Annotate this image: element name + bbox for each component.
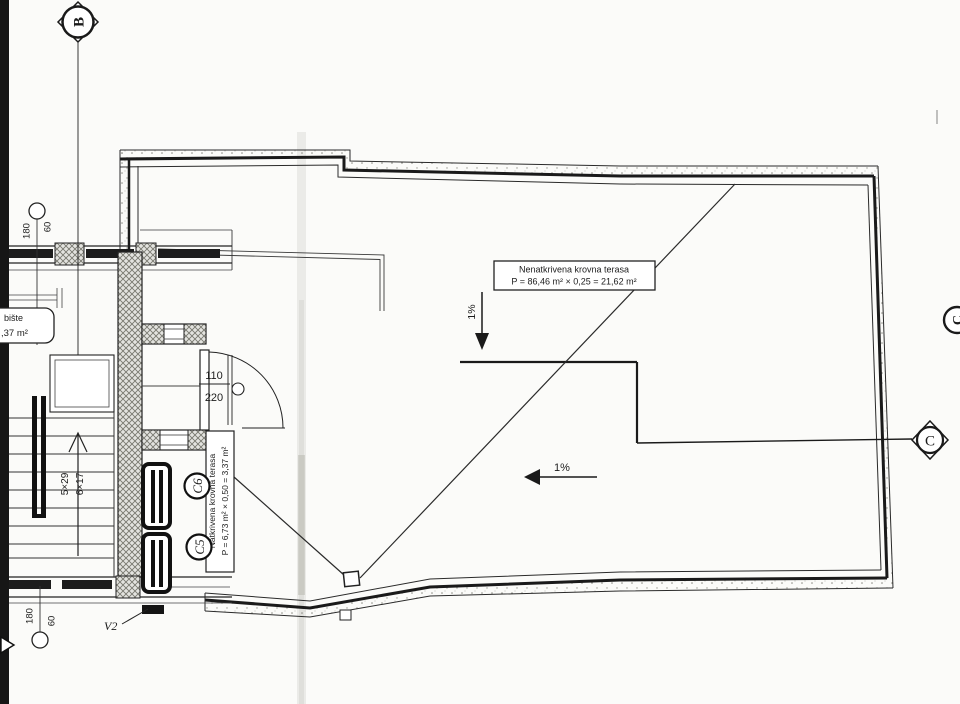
badge-c5-label: C5 [192,539,207,555]
door-knob-symbol [232,383,244,395]
badge-c6: C6 [185,474,210,499]
door-swing-arc [209,352,283,428]
uncovered-terrace-label: Nenatkrivena krovna terasa P = 86,46 m² … [494,261,655,290]
stair-flight-a: 5×29 [60,472,71,495]
door-height-dim: 220 [205,392,223,404]
roof-drain [343,571,359,586]
stairwell [9,355,114,577]
uncovered-terrace-calc: P = 86,46 m² × 0,25 = 21,62 m² [511,277,636,287]
dim-bottom-a: 180 [25,608,36,624]
slope-arrow-left: 1% [524,462,597,485]
v2-label: V2 [104,619,117,633]
terrace-door [142,350,285,430]
covered-terrace-calc: P = 6,73 m² × 0,50 = 3,37 m² [220,446,230,555]
dim-top-a: 180 [22,223,33,239]
grid-marker-b: B [58,2,98,42]
valley-line-short [234,477,344,575]
grid-marker-c-edge-label: C [951,315,960,325]
dim-top-b: 60 [43,222,54,233]
grid-marker-c-axis: C [912,421,948,459]
slope-left-label: 1% [554,462,570,474]
slope-arrow-down: 1% [466,292,489,350]
stair-rail-bar [41,396,46,516]
grid-marker-b-label: B [72,17,88,27]
badge-c5: C5 [187,535,212,560]
grid-marker-c-edge: C [944,307,960,333]
scan-left-border [0,0,9,704]
stair-area-calc: ,37 m² [1,328,28,339]
v2-element [142,605,164,614]
dim-bottom-b: 60 [47,616,58,627]
arrow-down-icon [475,333,489,350]
badge-c6-label: C6 [190,478,205,494]
slope-down-label: 1% [466,304,478,319]
plan-drawing: 5×29 6×17 110 220 Nenatkrivena [0,0,960,704]
scupper [340,610,351,620]
v2-annotation: V2 [104,605,164,633]
stair-area-label: bište ,37 m² [0,308,54,343]
roof-edge-lines [158,249,384,311]
covered-terrace-title: Natkrivena krovna terasa [207,453,217,548]
arrow-left-icon [524,469,540,485]
door-width-dim: 110 [205,370,223,382]
uncovered-terrace-title: Nenatkrivena krovna terasa [519,265,629,275]
roof-vent-2 [143,534,170,592]
stair-area-title: bište [4,313,23,323]
door-leaf [200,350,209,430]
roof-vent-1 [143,464,170,528]
grid-marker-c-axis-label: C [925,434,935,450]
scan-fold-crease [297,132,306,704]
roof-terrace-plan-sheet: 5×29 6×17 110 220 Nenatkrivena [0,0,960,704]
valley-line-main [360,184,735,578]
stair-flight-b: 6×17 [75,472,86,495]
dim-marker-bottom: 180 60 [1,586,58,653]
stair-rail-bar [32,396,37,516]
